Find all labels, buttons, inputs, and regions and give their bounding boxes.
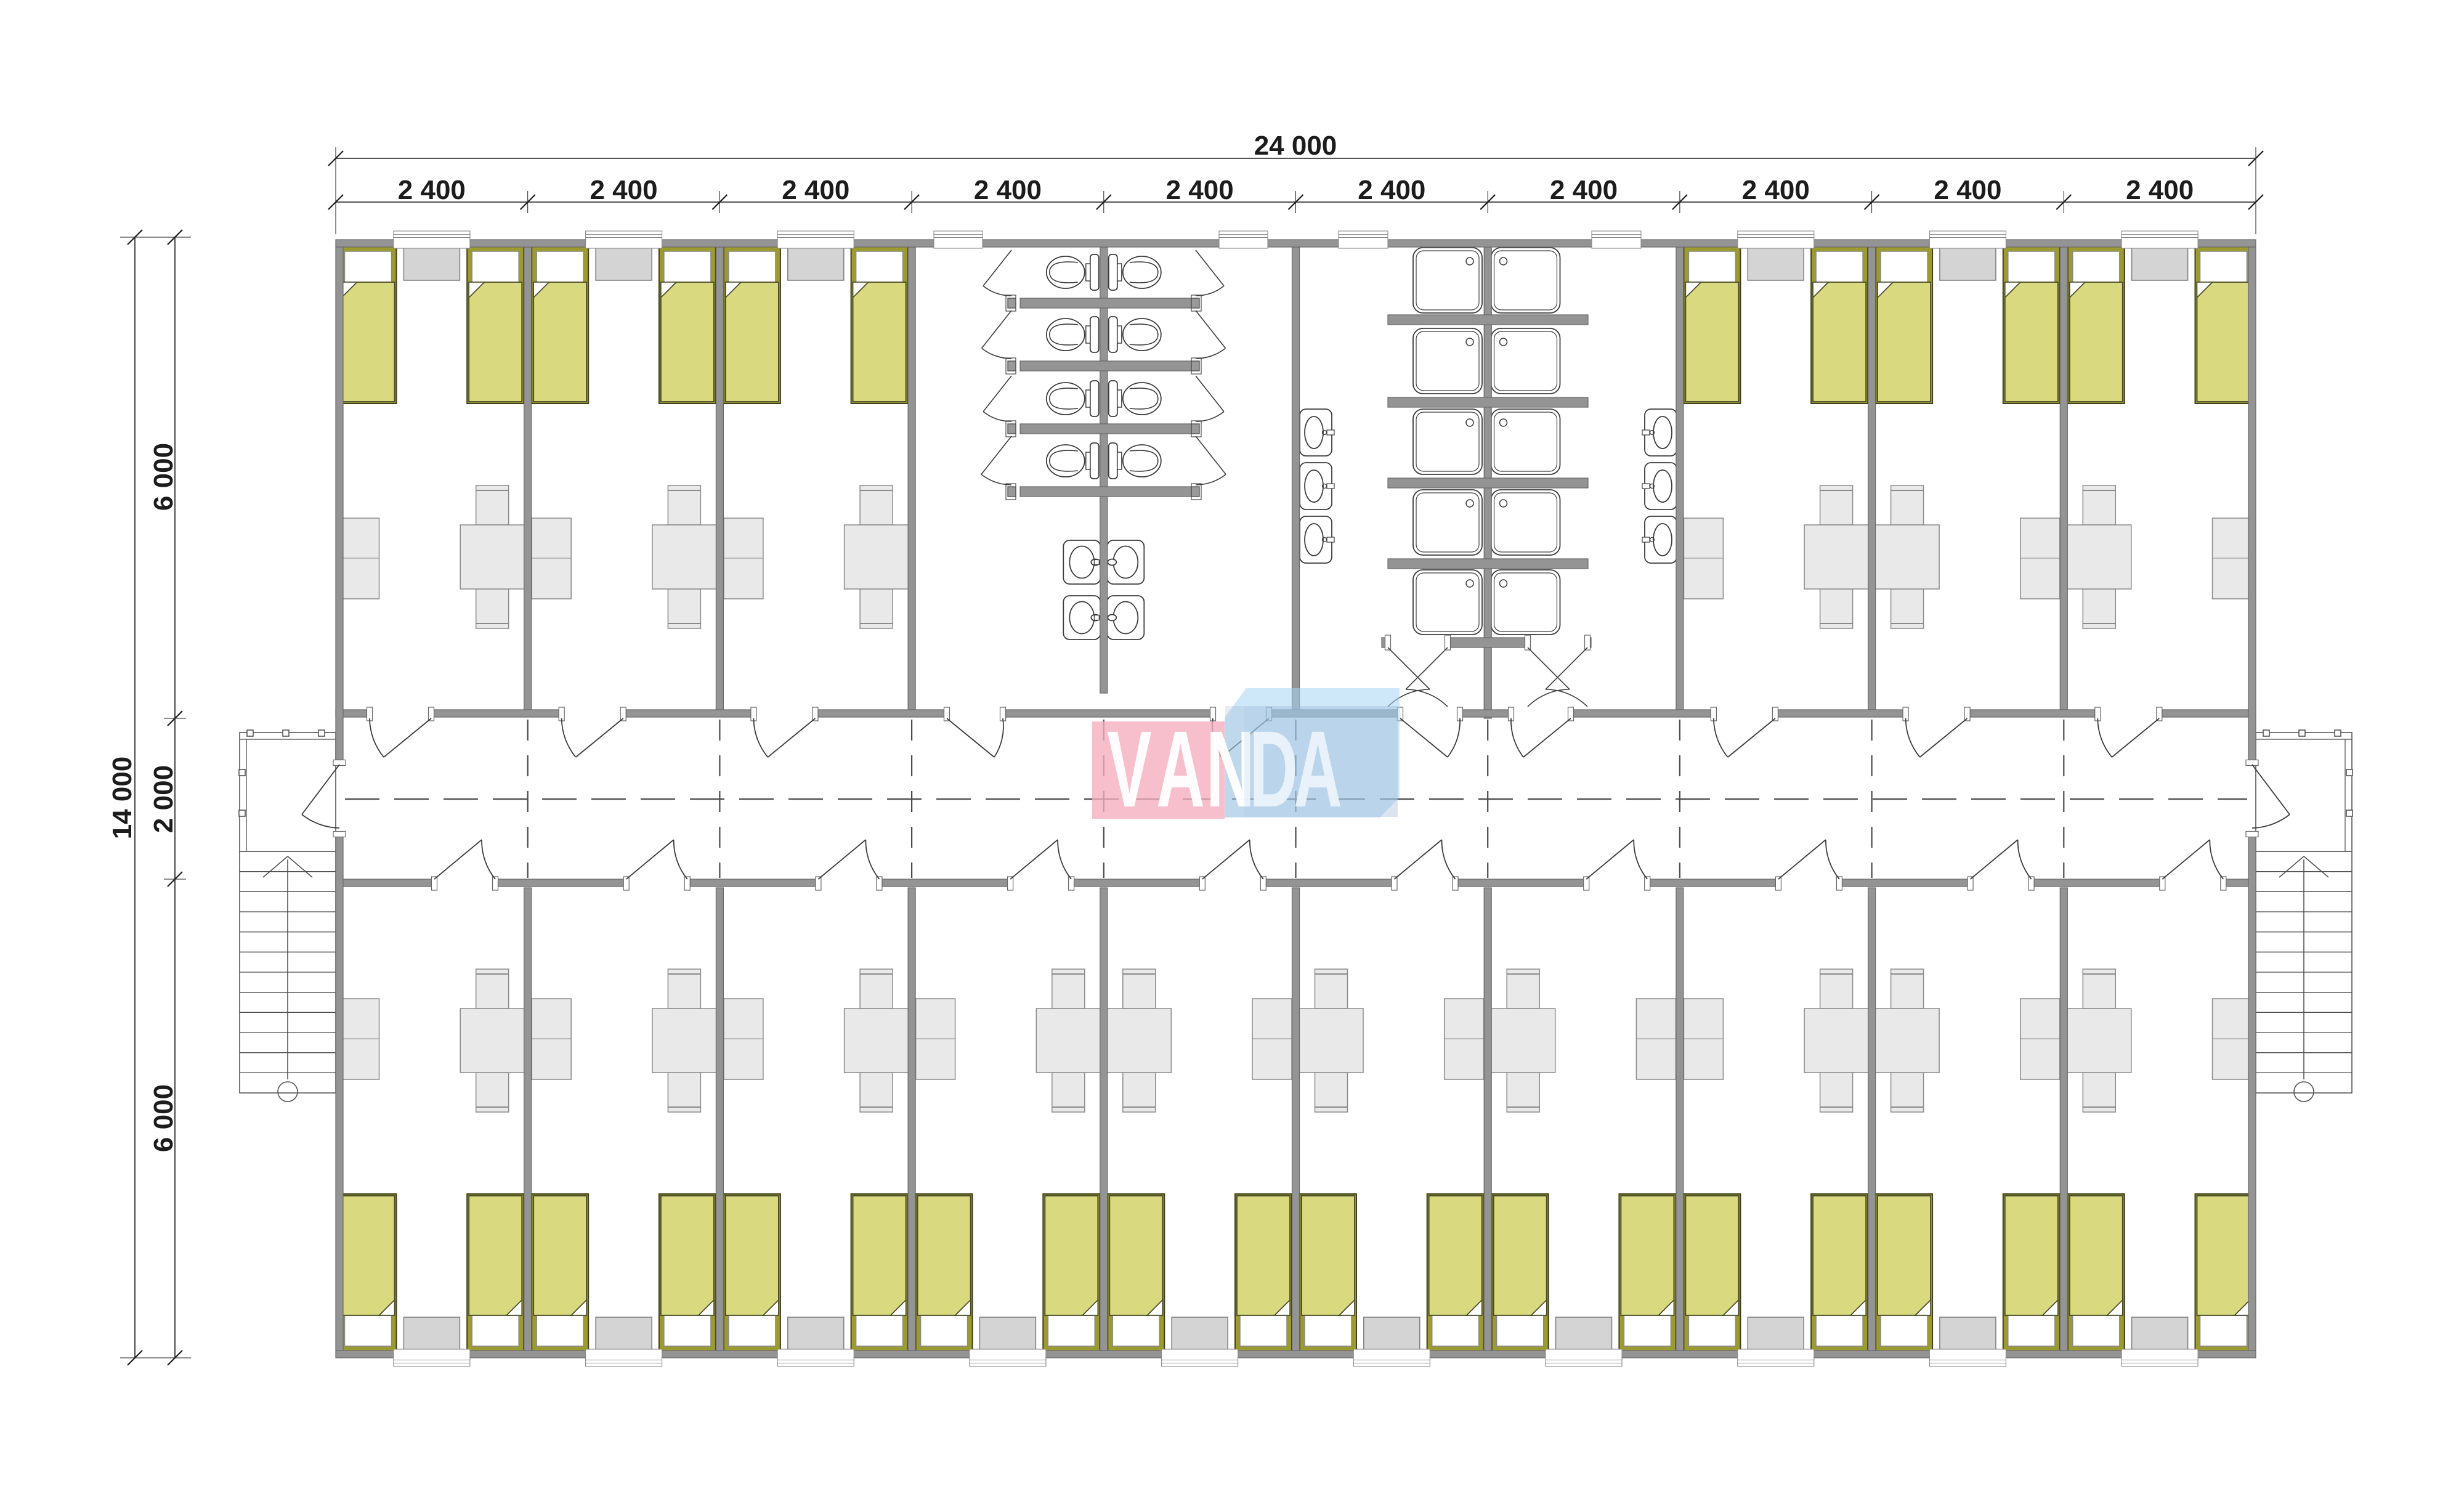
svg-text:2 400: 2 400 <box>1550 175 1618 205</box>
svg-text:14 000: 14 000 <box>107 757 137 840</box>
svg-text:2 400: 2 400 <box>590 175 657 205</box>
svg-text:2 000: 2 000 <box>148 765 179 833</box>
svg-text:2 400: 2 400 <box>1358 175 1425 205</box>
svg-text:2 400: 2 400 <box>1166 175 1234 205</box>
svg-text:A: A <box>1156 708 1205 830</box>
svg-text:6 000: 6 000 <box>148 443 179 511</box>
svg-text:2 400: 2 400 <box>1742 175 1810 205</box>
svg-text:2 400: 2 400 <box>398 175 466 205</box>
svg-text:2 400: 2 400 <box>2126 175 2194 205</box>
svg-text:24 000: 24 000 <box>1254 131 1337 161</box>
svg-text:2 400: 2 400 <box>974 175 1042 205</box>
svg-text:2 400: 2 400 <box>782 175 849 205</box>
svg-text:V: V <box>1107 708 1152 830</box>
svg-text:6 000: 6 000 <box>148 1084 179 1152</box>
svg-text:2 400: 2 400 <box>1934 175 2001 205</box>
